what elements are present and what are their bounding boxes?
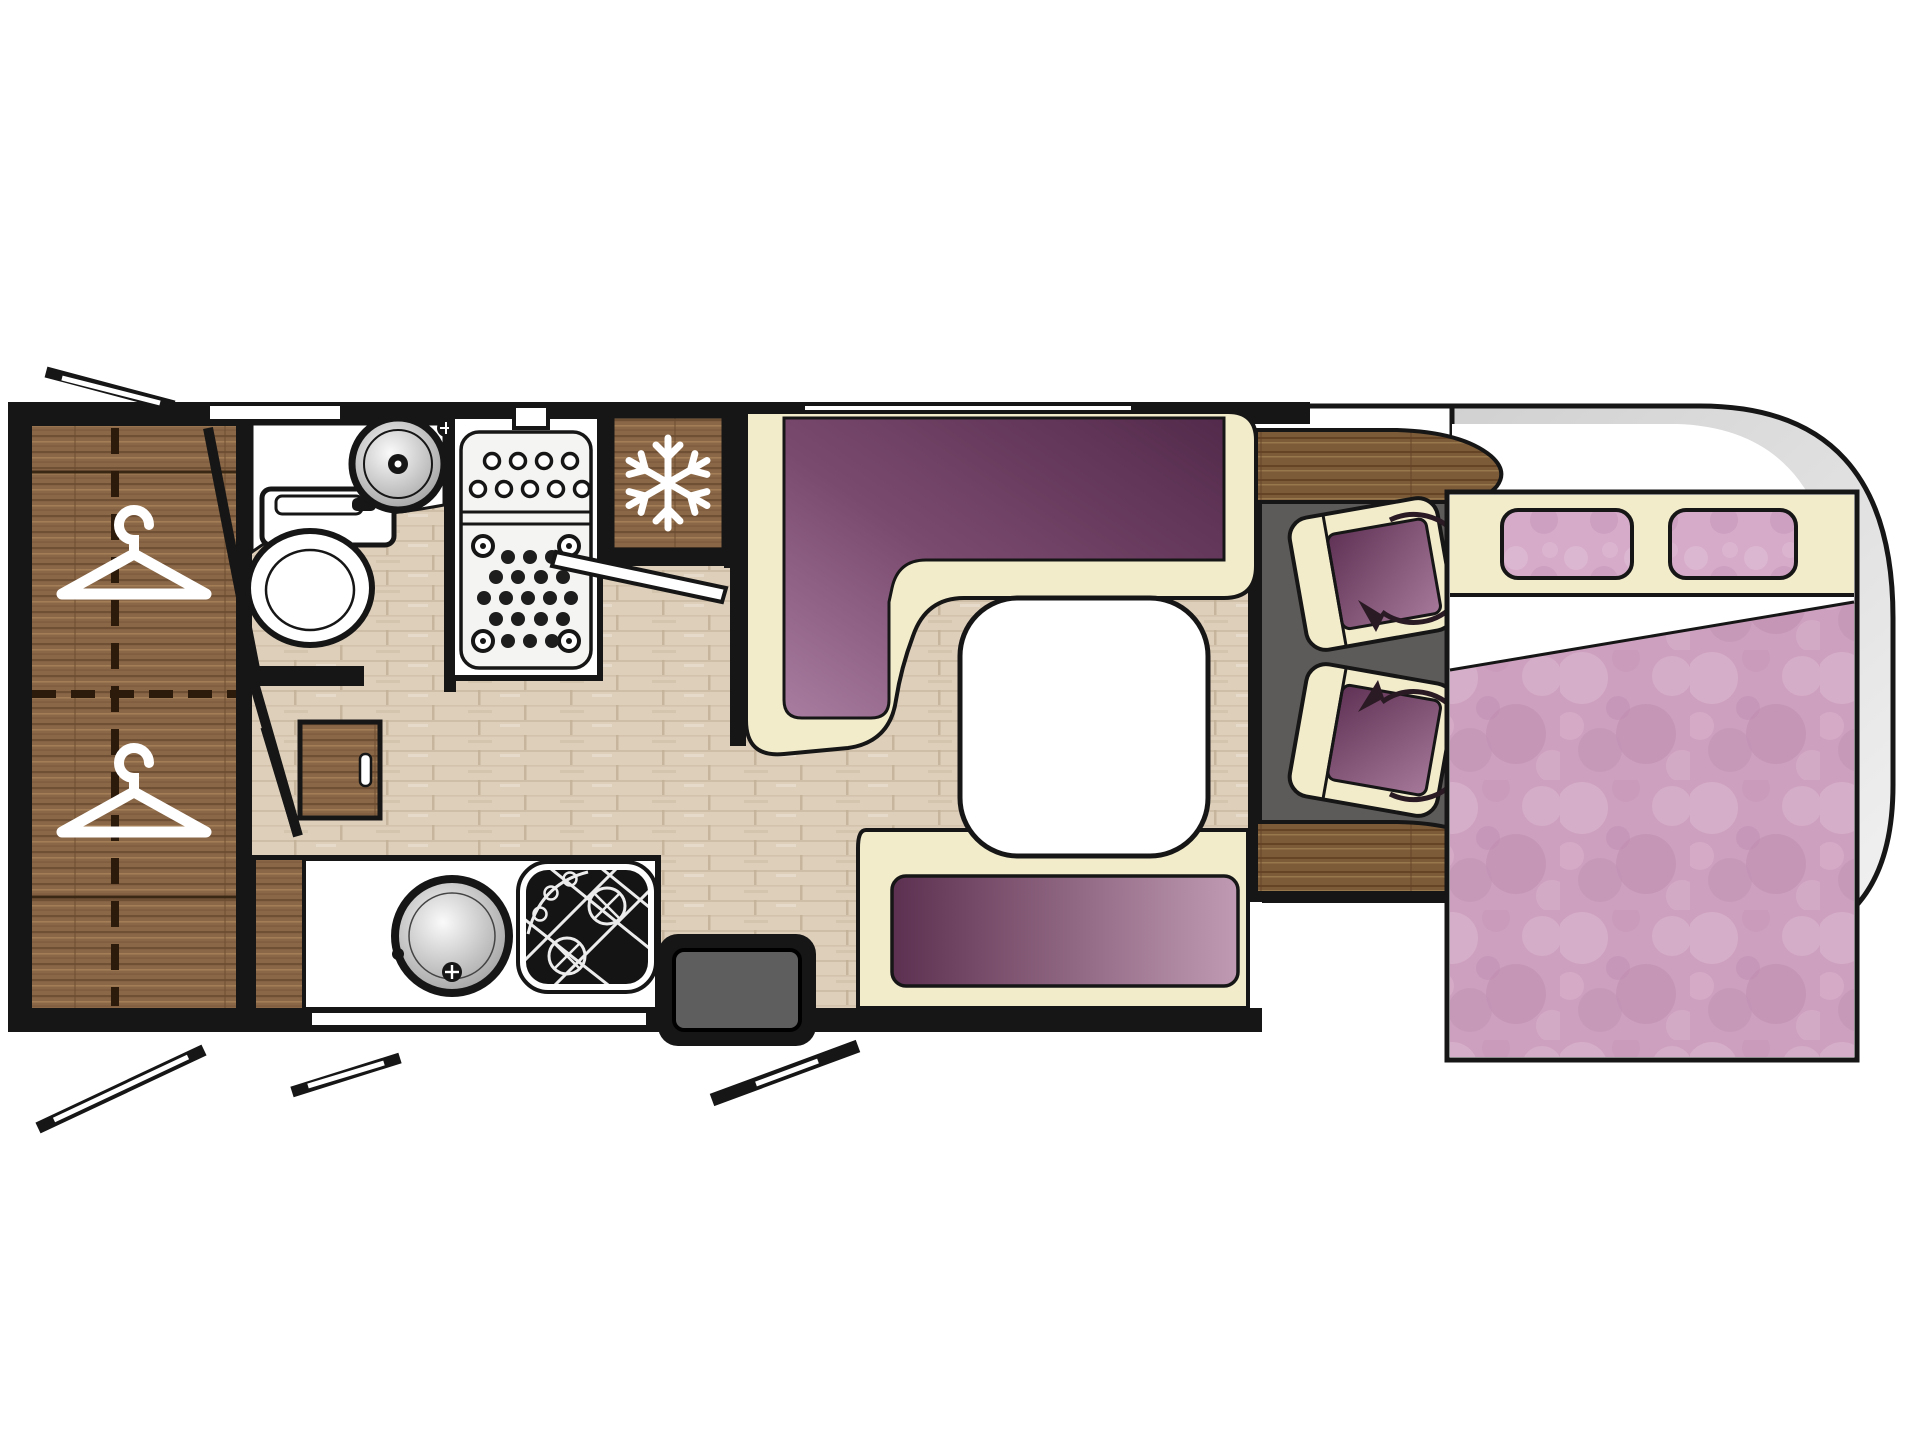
base-cabinet xyxy=(254,858,304,1010)
rear-wall xyxy=(8,402,32,1032)
pedestal-table xyxy=(960,598,1208,856)
drop-down-bed xyxy=(1447,492,1857,1060)
window-slot xyxy=(210,406,340,419)
mattress xyxy=(1450,602,1854,1057)
dinette-end-wall xyxy=(730,402,746,746)
shower-cubicle xyxy=(452,406,600,678)
pillow xyxy=(1670,510,1796,578)
wardrobe-partition xyxy=(236,402,252,1032)
window-slot xyxy=(312,1013,646,1025)
rear-wardrobe xyxy=(30,424,238,1010)
side-bench-cushion xyxy=(892,876,1238,986)
shower-tap-box xyxy=(514,406,548,428)
kitchen xyxy=(254,855,670,1010)
sink-tap xyxy=(392,948,404,960)
pillow xyxy=(1502,510,1632,578)
motorhome-floor-plan xyxy=(0,0,1920,1440)
refrigerator xyxy=(612,416,724,550)
kitchen-sink xyxy=(392,879,509,993)
floor-plan-canvas xyxy=(0,0,1920,1440)
drawer-handle xyxy=(360,754,371,786)
entry-step xyxy=(674,950,800,1030)
